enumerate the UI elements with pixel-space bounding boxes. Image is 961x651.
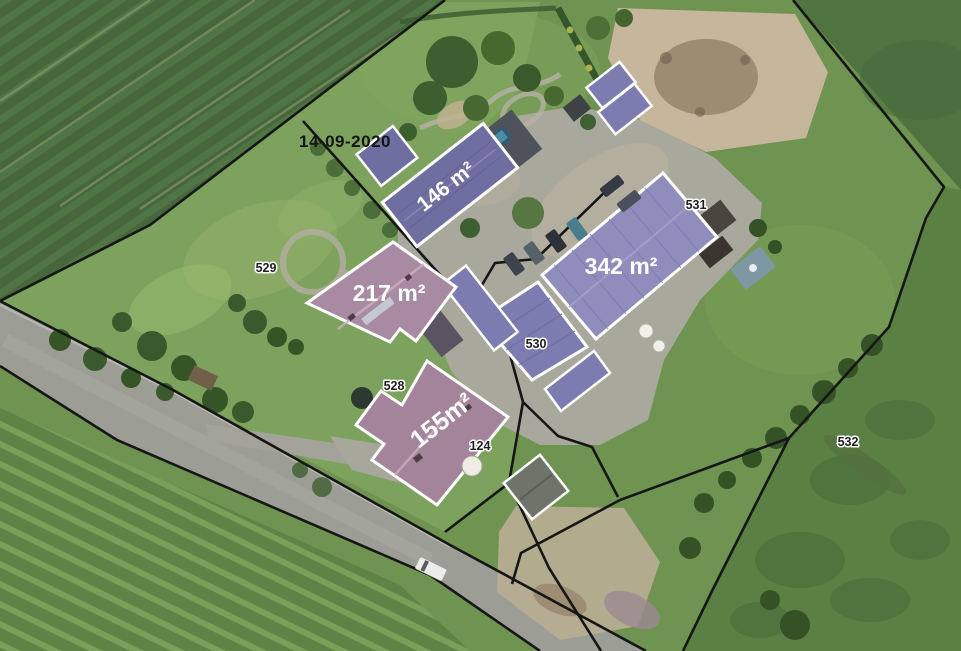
date-label: 14-09-2020	[299, 132, 391, 151]
parasol	[653, 340, 665, 352]
area-label-217: 217 m²	[353, 280, 426, 306]
sand-mound	[654, 39, 758, 115]
parcel-label-124: 124	[470, 439, 491, 453]
parasol	[639, 324, 653, 338]
parcel-label-532: 532	[838, 435, 859, 449]
parcel-label-529: 529	[256, 261, 277, 275]
parcel-label-531: 531	[686, 198, 707, 212]
map-viewport[interactable]: 14-09-2020 146 m² 342 m² 217 m² 155m² 52…	[0, 0, 961, 651]
parcel-label-530: 530	[526, 337, 547, 351]
parasol	[462, 456, 482, 476]
parcel-label-528: 528	[384, 379, 405, 393]
area-label-342: 342 m²	[585, 253, 658, 279]
